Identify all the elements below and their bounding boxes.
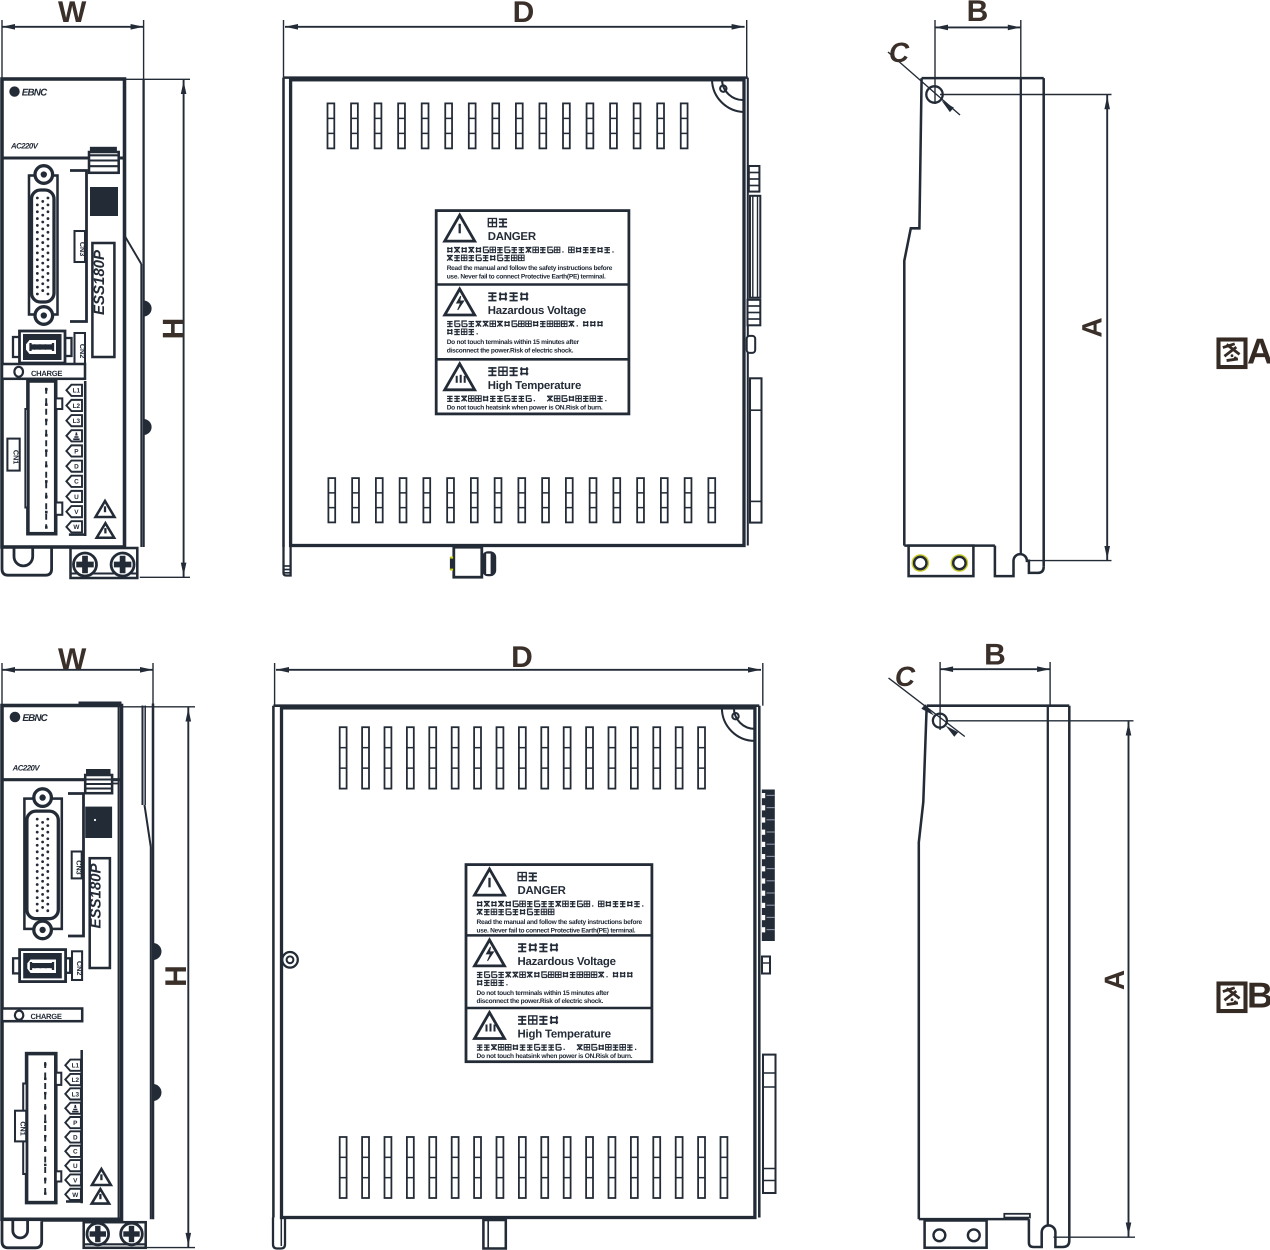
svg-text:U: U	[73, 1163, 78, 1170]
svg-text:H: H	[160, 965, 193, 987]
svg-text:C: C	[895, 661, 916, 692]
svg-text:Do not touch heatsink when pow: Do not touch heatsink when power is ON.R…	[477, 1053, 633, 1060]
svg-text:A: A	[1077, 317, 1108, 337]
svg-text:U: U	[74, 494, 79, 501]
svg-text:W: W	[72, 1192, 79, 1199]
svg-text:B: B	[984, 639, 1006, 672]
svg-text:W: W	[58, 0, 87, 29]
svg-text:L2: L2	[73, 403, 81, 410]
svg-text:Do not touch heatsink when pow: Do not touch heatsink when power is ON.R…	[447, 404, 603, 411]
svg-text:L1: L1	[72, 1063, 80, 1070]
svg-text:C: C	[74, 479, 79, 486]
svg-text:L3: L3	[72, 1091, 80, 1098]
svg-text:High Temperature: High Temperature	[518, 1029, 611, 1041]
svg-text:use. Never fail to connect Pro: use. Never fail to connect Protective Ea…	[477, 927, 636, 934]
svg-text:H: H	[157, 318, 190, 340]
svg-text:Do not touch terminals within: Do not touch terminals within 15 minutes…	[447, 339, 580, 346]
svg-text:Hazardous Voltage: Hazardous Voltage	[518, 956, 616, 968]
svg-text:V: V	[73, 1177, 78, 1184]
svg-text:Hazardous Voltage: Hazardous Voltage	[488, 305, 586, 317]
svg-text:ESS180P: ESS180P	[88, 862, 105, 928]
svg-text:AC220V: AC220V	[10, 142, 39, 151]
svg-text:CN2: CN2	[78, 344, 87, 358]
svg-text:D: D	[511, 641, 533, 674]
svg-text:P: P	[74, 448, 79, 455]
svg-text:L1: L1	[73, 388, 81, 395]
svg-text:D: D	[74, 464, 79, 471]
svg-text:ESS180P: ESS180P	[91, 249, 108, 315]
svg-text:B: B	[1247, 975, 1270, 1016]
svg-text:Do not touch terminals within: Do not touch terminals within 15 minutes…	[477, 990, 610, 997]
svg-text:use. Never fail to connect Pro: use. Never fail to connect Protective Ea…	[447, 273, 606, 280]
svg-text:Read the manual and follow the: Read the manual and follow the safety in…	[477, 919, 643, 926]
svg-text:D: D	[73, 1134, 78, 1141]
svg-text:CN3: CN3	[75, 860, 84, 874]
svg-text:EBNC: EBNC	[22, 88, 48, 99]
svg-text:High Temperature: High Temperature	[488, 380, 581, 392]
svg-text:A: A	[1247, 331, 1270, 372]
svg-text:A: A	[1099, 970, 1130, 990]
svg-text:CHARGE: CHARGE	[31, 1012, 62, 1021]
svg-text:CN2: CN2	[75, 961, 84, 975]
svg-text:CN1: CN1	[19, 1121, 28, 1135]
svg-text:CN3: CN3	[78, 242, 87, 256]
svg-text:DANGER: DANGER	[488, 231, 536, 243]
svg-text:CHARGE: CHARGE	[31, 369, 62, 378]
svg-text:C: C	[73, 1149, 78, 1156]
svg-text:CN1: CN1	[12, 450, 21, 464]
svg-text:AC220V: AC220V	[12, 764, 41, 773]
svg-text:D: D	[513, 0, 535, 29]
svg-text:disconnect the power.Risk of e: disconnect the power.Risk of electric sh…	[477, 998, 604, 1005]
svg-text:B: B	[967, 0, 989, 28]
svg-text:DANGER: DANGER	[518, 885, 566, 897]
svg-text:W: W	[73, 524, 80, 531]
svg-text:EBNC: EBNC	[22, 713, 48, 724]
svg-text:L3: L3	[73, 418, 81, 425]
svg-text:V: V	[74, 509, 79, 516]
svg-text:C: C	[889, 37, 910, 68]
svg-text:P: P	[73, 1120, 78, 1127]
svg-text:L2: L2	[72, 1077, 80, 1084]
svg-text:Read the manual and follow the: Read the manual and follow the safety in…	[447, 265, 613, 272]
svg-text:W: W	[58, 643, 87, 676]
svg-text:disconnect the power.Risk of e: disconnect the power.Risk of electric sh…	[447, 347, 574, 354]
